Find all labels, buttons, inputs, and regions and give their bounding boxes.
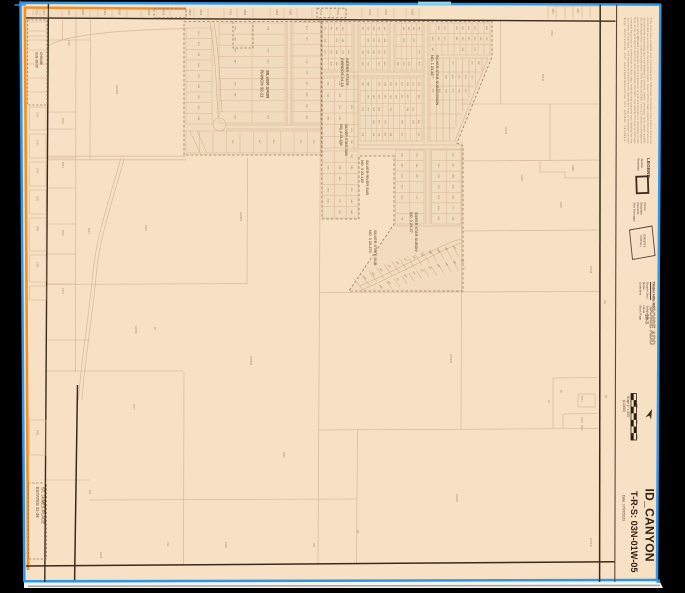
svg-text:9327: 9327: [87, 228, 91, 234]
svg-text:SILVER STATE SUB: SILVER STATE SUB: [373, 230, 377, 266]
svg-text:R3: R3: [356, 530, 360, 534]
svg-text:SILVER STAR SUBDIV: SILVER STAR SUBDIV: [414, 212, 418, 252]
svg-text:1400: 1400: [36, 140, 39, 146]
svg-text:Timber Hills Rd: Timber Hills Rd: [651, 282, 655, 308]
svg-text:9514: 9514: [580, 417, 584, 423]
svg-text:R3094: R3094: [455, 494, 459, 502]
svg-text:9512: 9512: [61, 230, 65, 236]
svg-text:NO. 3 29-27: NO. 3 29-27: [409, 212, 413, 233]
svg-text:R30964: R30964: [239, 212, 243, 222]
svg-text:9821: 9821: [61, 118, 65, 124]
svg-text:9644: 9644: [61, 162, 65, 168]
svg-text:ESTATES 31-38: ESTATES 31-38: [35, 487, 40, 518]
svg-text:RANCH 32-11: RANCH 32-11: [260, 70, 265, 98]
svg-text:3414: 3414: [36, 112, 39, 118]
svg-text:12345678 9: 12345678 9: [643, 234, 647, 248]
svg-text:921: 921: [603, 300, 607, 305]
svg-text:9510: 9510: [551, 9, 554, 15]
svg-text:R30958: R30958: [249, 356, 253, 366]
svg-text:SILVER STAR SUBDIVISION: SILVER STAR SUBDIVISION: [435, 55, 439, 106]
svg-text:ID_CANYON: ID_CANYON: [643, 489, 657, 562]
svg-text:93188: 93188: [589, 266, 593, 274]
svg-text:R30952: R30952: [449, 354, 453, 364]
svg-text:(1:2400): (1:2400): [622, 400, 626, 412]
svg-text:9473: 9473: [61, 288, 65, 294]
svg-text:9356: 9356: [559, 202, 563, 208]
svg-text:Date: 07/07/2023: Date: 07/07/2023: [622, 495, 626, 521]
svg-text:SILVER SPUR: SILVER SPUR: [265, 70, 270, 99]
svg-text:8461: 8461: [36, 430, 39, 436]
svg-text:CHISUM: CHISUM: [39, 52, 43, 65]
svg-text:921: 921: [88, 490, 92, 495]
svg-text:Size (Acreage): Size (Acreage): [633, 203, 637, 222]
svg-text:9516: 9516: [580, 425, 584, 431]
svg-text:911: 911: [166, 542, 170, 547]
svg-text:903: 903: [312, 543, 316, 548]
svg-text:9215: 9215: [282, 452, 286, 458]
svg-text:BOISE ADD: BOISE ADD: [648, 307, 655, 346]
svg-text:1757: 1757: [36, 168, 39, 174]
svg-text:R30941: R30941: [589, 538, 593, 548]
svg-text:SILVER STAR SUB: SILVER STAR SUB: [344, 124, 348, 156]
svg-text:R3096: R3096: [134, 326, 138, 334]
svg-text:9315: 9315: [144, 225, 148, 231]
svg-text:NO. 4 23-154: NO. 4 23-154: [339, 124, 343, 146]
svg-text:SUB 26-35: SUB 26-35: [35, 52, 39, 68]
svg-text:NO. 4 25-165: NO. 4 25-165: [360, 160, 364, 183]
svg-text:CONDOS 24-18: CONDOS 24-18: [340, 58, 345, 88]
svg-text:2193: 2193: [36, 262, 39, 268]
svg-text:Block Page: Block Page: [639, 306, 643, 321]
svg-text:SILVER RIVER SUB: SILVER RIVER SUB: [365, 160, 369, 195]
svg-text:9402: 9402: [520, 175, 524, 181]
svg-text:(9.99 Ac.): (9.99 Ac.): [639, 236, 643, 247]
svg-text:Boundary: Boundary: [636, 159, 640, 172]
svg-text:9748: 9748: [67, 40, 71, 46]
svg-text:9148: 9148: [224, 542, 228, 548]
svg-text:by errors or omissions in this: by errors or omissions in this map.: [623, 18, 626, 145]
svg-text:9512: 9512: [580, 396, 584, 402]
svg-text:T-R-S: 03N-01W-05: T-R-S: 03N-01W-05: [629, 491, 639, 573]
svg-text:9761: 9761: [550, 30, 554, 36]
svg-text:ST. JAMES PLACE: ST. JAMES PLACE: [41, 487, 46, 524]
svg-text:NO. 1 23-41: NO. 1 23-41: [430, 55, 434, 76]
svg-text:96410: 96410: [541, 74, 545, 82]
svg-text:NO. 3 29-275: NO. 3 29-275: [368, 230, 372, 253]
svg-text:8784: 8784: [36, 226, 39, 232]
svg-text:Centerline: Centerline: [639, 282, 643, 296]
svg-text:95122: 95122: [504, 127, 508, 135]
svg-text:9377: 9377: [132, 404, 136, 410]
svg-text:5011: 5011: [36, 196, 39, 202]
svg-text:R309: R309: [99, 552, 103, 559]
svg-text:9512: 9512: [576, 9, 579, 15]
svg-text:18-8: 18-8: [643, 314, 649, 324]
svg-text:R30966: R30966: [115, 85, 119, 95]
svg-text:9488: 9488: [571, 165, 575, 171]
